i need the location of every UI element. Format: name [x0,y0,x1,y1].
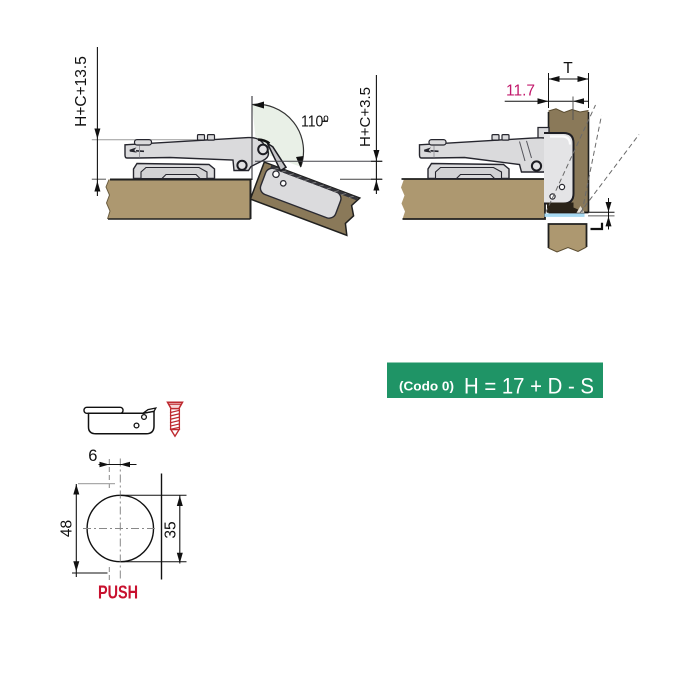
svg-text:11.7: 11.7 [506,83,535,100]
svg-text:H = 17 + D - S: H = 17 + D - S [464,374,594,399]
svg-text:35: 35 [163,521,180,538]
svg-text:110º: 110º [301,114,329,131]
svg-text:48: 48 [59,520,76,537]
svg-text:H+C+13.5: H+C+13.5 [73,56,90,127]
svg-text:(Codo 0): (Codo 0) [399,379,454,394]
svg-text:T: T [563,60,573,77]
svg-text:PUSH: PUSH [98,582,138,603]
svg-text:H+C+3.5: H+C+3.5 [357,87,374,147]
svg-text:6: 6 [88,447,97,465]
